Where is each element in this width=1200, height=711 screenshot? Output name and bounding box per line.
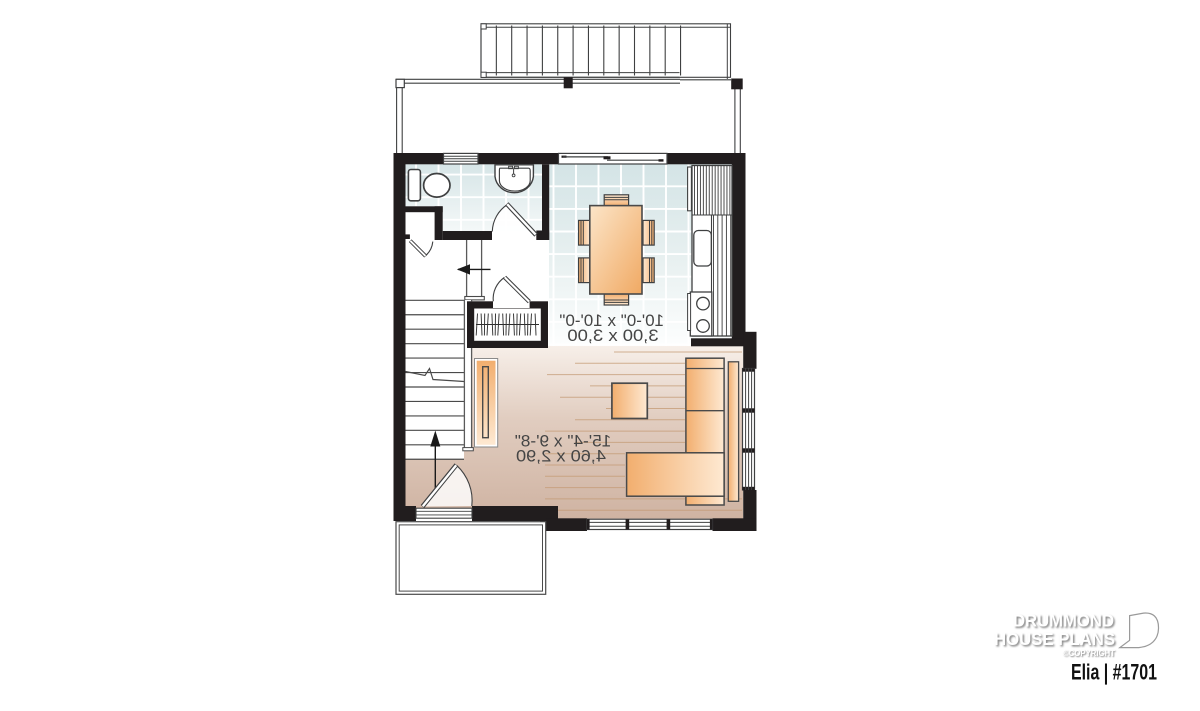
svg-text:HOUSE PLANS: HOUSE PLANS — [994, 629, 1115, 649]
svg-text:3,00 x 3,00: 3,00 x 3,00 — [567, 327, 658, 345]
svg-text:4,60 x 2,90: 4,60 x 2,90 — [516, 448, 606, 466]
svg-text:©COPYRIGHT: ©COPYRIGHT — [1063, 648, 1116, 658]
svg-text:DRUMMOND: DRUMMOND — [1013, 611, 1114, 631]
svg-text:Elia | #1701: Elia | #1701 — [1071, 660, 1157, 685]
